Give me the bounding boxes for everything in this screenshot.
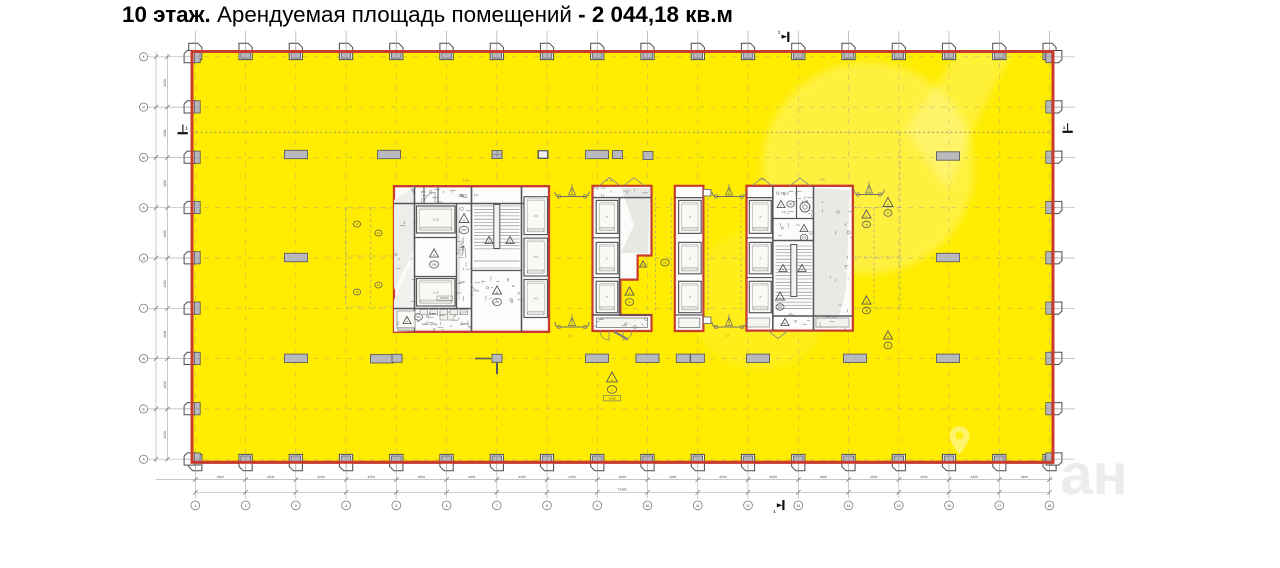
svg-text:4200: 4200 — [518, 475, 526, 479]
svg-text:Л-3: Л-3 — [533, 255, 538, 259]
svg-text:Л: Л — [689, 256, 691, 260]
svg-text:A: A — [803, 227, 805, 231]
svg-text:14: 14 — [847, 504, 851, 508]
svg-text:1: 1 — [194, 504, 196, 508]
svg-text:A: A — [611, 378, 613, 382]
svg-text:A: A — [642, 263, 644, 267]
svg-text:13: 13 — [796, 504, 800, 508]
svg-text:Л: Л — [689, 215, 691, 219]
svg-text:17: 17 — [997, 504, 1001, 508]
svg-text:10: 10 — [646, 504, 650, 508]
svg-text:4200: 4200 — [619, 475, 627, 479]
svg-text:4200: 4200 — [468, 475, 476, 479]
svg-text:A: A — [779, 296, 781, 300]
svg-text:4200: 4200 — [770, 475, 778, 479]
svg-text:4200: 4200 — [267, 475, 275, 479]
svg-text:4200: 4200 — [163, 331, 167, 339]
svg-text:A: A — [865, 214, 867, 218]
svg-text:A: A — [887, 202, 889, 206]
svg-text:4200: 4200 — [971, 475, 979, 479]
svg-text:A: A — [887, 335, 889, 339]
svg-text:4г: 4г — [887, 344, 890, 348]
svg-text:507: 507 — [778, 305, 783, 309]
svg-text:4200: 4200 — [163, 381, 167, 389]
svg-text:A: A — [628, 291, 630, 295]
svg-text:4б: 4б — [886, 211, 890, 215]
svg-text:503: 503 — [462, 228, 467, 232]
svg-text:4200: 4200 — [719, 475, 727, 479]
svg-text:19: 19 — [355, 290, 359, 294]
svg-text:12: 12 — [746, 504, 750, 508]
svg-text:С ПР: С ПР — [819, 179, 825, 182]
svg-text:Л: Л — [606, 295, 608, 299]
svg-text:501: 501 — [416, 315, 421, 319]
svg-text:Б: Б — [629, 300, 631, 304]
svg-text:506: 506 — [802, 236, 807, 240]
svg-text:Л: Л — [759, 295, 761, 299]
svg-text:4200: 4200 — [1021, 475, 1029, 479]
svg-text:9: 9 — [596, 504, 598, 508]
svg-text:1-3: 1-3 — [568, 335, 572, 338]
svg-text:19.03б: 19.03б — [439, 296, 449, 300]
svg-text:19.02: 19.02 — [608, 397, 616, 401]
svg-text:19: 19 — [377, 283, 381, 287]
svg-text:2,10: 2,10 — [433, 290, 439, 294]
svg-text:4200: 4200 — [163, 180, 167, 188]
svg-text:Л: Л — [759, 256, 761, 260]
svg-text:БК: БК — [663, 261, 667, 265]
svg-text:A: A — [433, 253, 435, 257]
svg-text:505: 505 — [495, 300, 500, 304]
svg-text:ПРЕВ: ПРЕВ — [758, 179, 765, 182]
svg-text:3: 3 — [295, 504, 297, 508]
svg-text:16: 16 — [947, 504, 951, 508]
svg-text:A: A — [406, 319, 408, 323]
svg-text:4200: 4200 — [163, 280, 167, 288]
svg-text:4200: 4200 — [163, 230, 167, 238]
svg-text:4200: 4200 — [569, 475, 577, 479]
svg-text:19: 19 — [377, 231, 381, 235]
svg-text:1-3: 1-3 — [725, 335, 729, 338]
svg-text:8: 8 — [546, 504, 548, 508]
svg-text:7: 7 — [496, 504, 498, 508]
svg-text:4200: 4200 — [368, 475, 376, 479]
svg-text:4200: 4200 — [317, 475, 325, 479]
svg-text:Л: Л — [689, 295, 691, 299]
svg-text:Л: Л — [759, 215, 761, 219]
svg-text:4,6²: 4,6² — [474, 193, 479, 197]
svg-text:19: 19 — [355, 222, 359, 226]
svg-text:A: A — [780, 203, 782, 207]
svg-text:4а: 4а — [865, 223, 869, 227]
svg-text:2,10: 2,10 — [433, 218, 439, 222]
svg-text:4200: 4200 — [669, 475, 677, 479]
svg-text:15: 15 — [897, 504, 901, 508]
svg-text:A: A — [488, 239, 490, 243]
svg-text:Л-3: Л-3 — [533, 214, 538, 218]
svg-text:Л: Л — [606, 256, 608, 260]
svg-text:Л-3: Л-3 — [533, 297, 538, 301]
svg-text:4 500: 4 500 — [607, 180, 614, 183]
svg-text:11: 11 — [696, 504, 700, 508]
svg-text:4200: 4200 — [418, 475, 426, 479]
svg-text:4,4²: 4,4² — [782, 210, 787, 214]
svg-text:Л: Л — [606, 215, 608, 219]
svg-text:71400: 71400 — [617, 488, 626, 492]
svg-text:4200: 4200 — [163, 129, 167, 137]
svg-text:К: К — [143, 55, 145, 59]
svg-text:A: A — [782, 267, 784, 271]
svg-text:4200: 4200 — [163, 79, 167, 87]
svg-text:A: A — [463, 218, 465, 222]
svg-text:6 000: 6 000 — [463, 180, 470, 183]
svg-text:4200: 4200 — [820, 475, 828, 479]
svg-text:4200: 4200 — [870, 475, 878, 479]
svg-text:4200: 4200 — [217, 475, 225, 479]
svg-text:ПБ-2: ПБ-2 — [781, 192, 788, 196]
svg-text:4200: 4200 — [920, 475, 928, 479]
svg-text:A: A — [509, 239, 511, 243]
svg-text:ан: ан — [1060, 442, 1127, 507]
svg-text:A: A — [801, 267, 803, 271]
svg-text:504: 504 — [432, 263, 437, 267]
svg-text:6: 6 — [446, 504, 448, 508]
svg-text:РВ: РВ — [789, 202, 793, 206]
svg-text:2: 2 — [245, 504, 247, 508]
svg-text:A: A — [865, 300, 867, 304]
svg-text:Г: Г — [143, 307, 145, 311]
svg-text:4: 4 — [345, 504, 347, 508]
svg-text:4200: 4200 — [163, 431, 167, 439]
svg-text:18: 18 — [1048, 504, 1052, 508]
svg-text:5: 5 — [395, 504, 397, 508]
svg-text:4в: 4в — [865, 309, 869, 313]
